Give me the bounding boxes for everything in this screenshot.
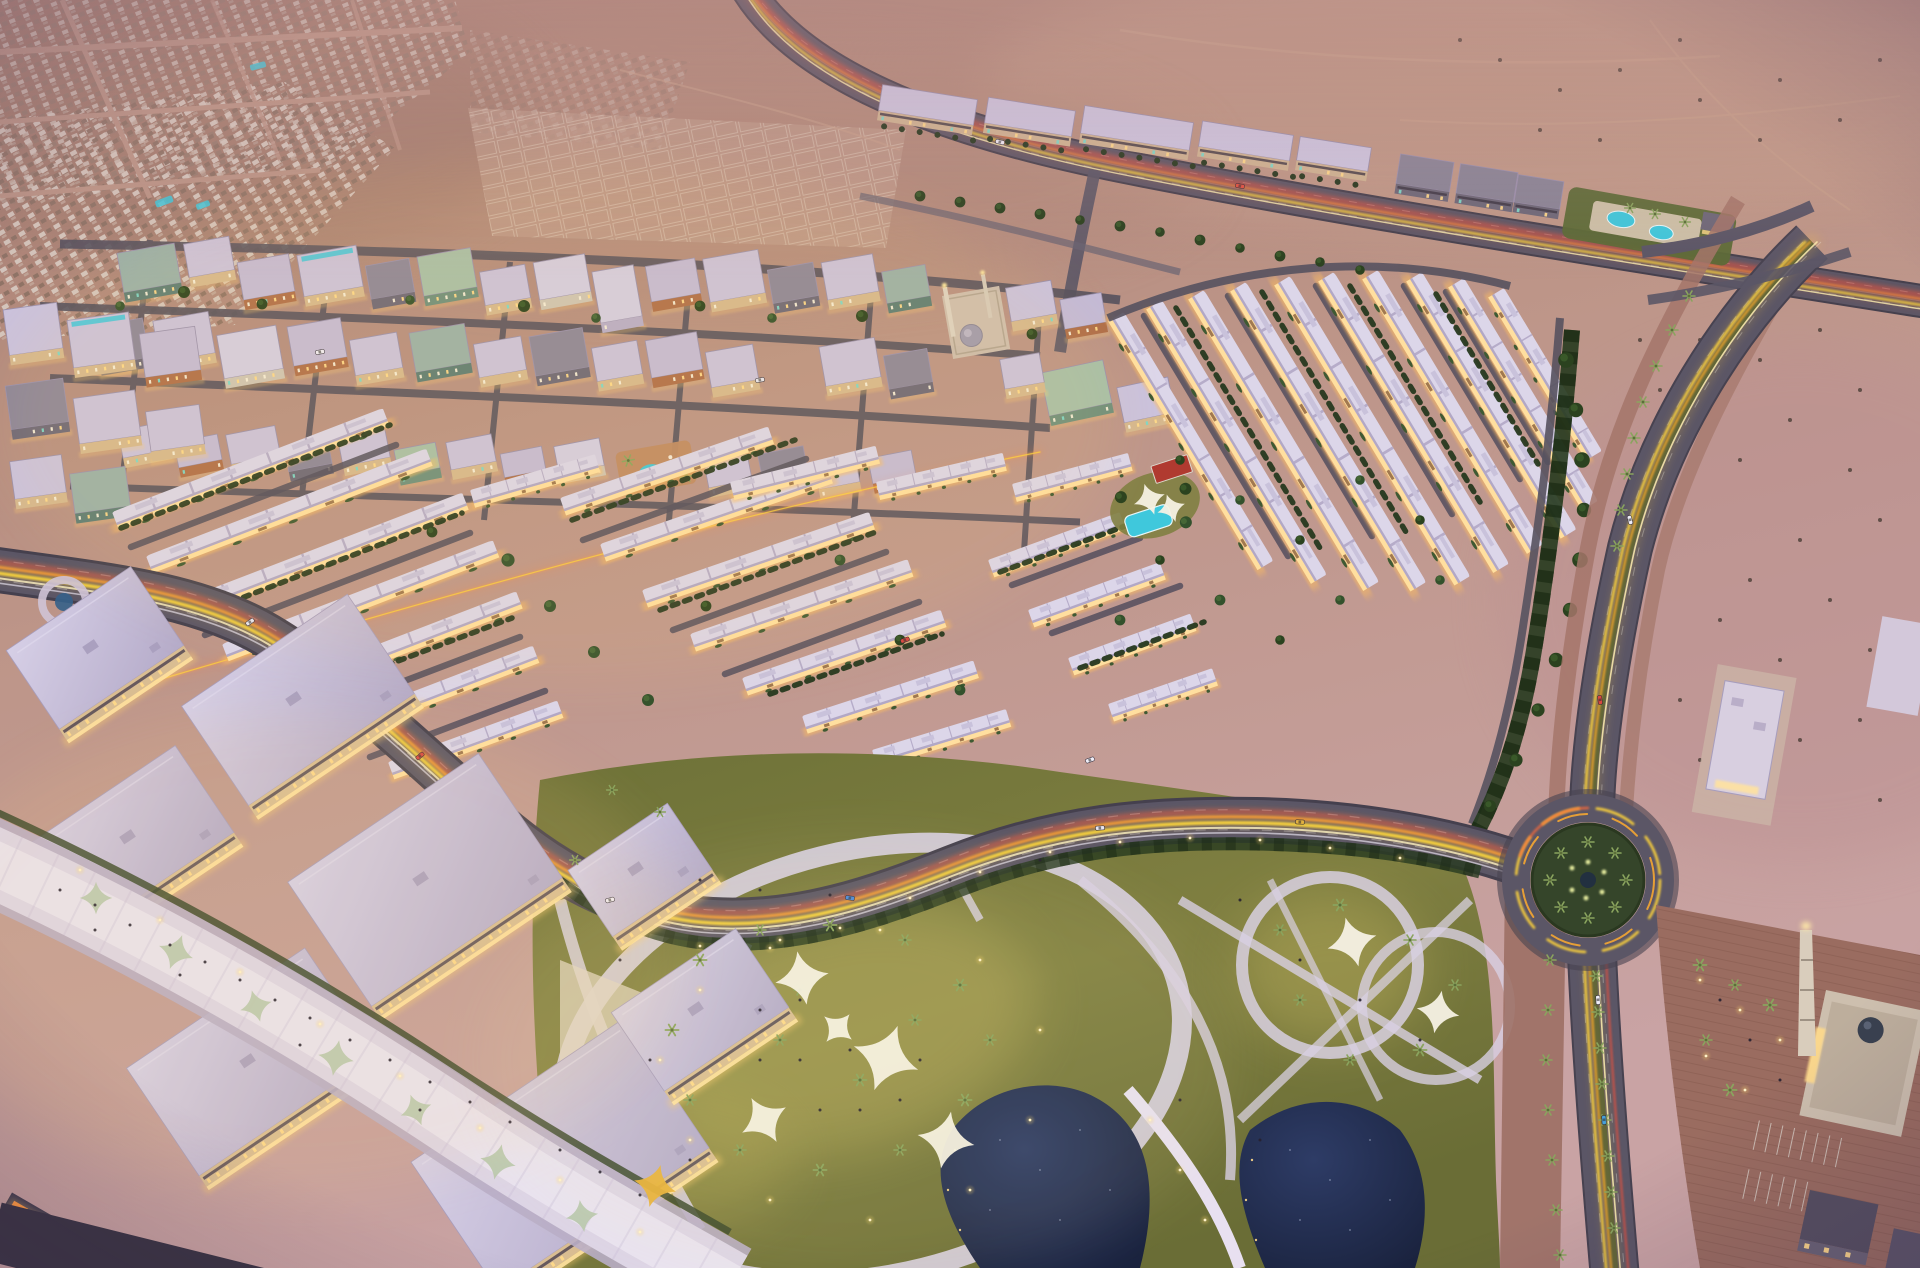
scene-canvas bbox=[0, 0, 1920, 1268]
atmosphere-overlays bbox=[0, 0, 1920, 1268]
aerial-city-rendering: Aerial dusk rendering of a desert master… bbox=[0, 0, 1920, 1268]
